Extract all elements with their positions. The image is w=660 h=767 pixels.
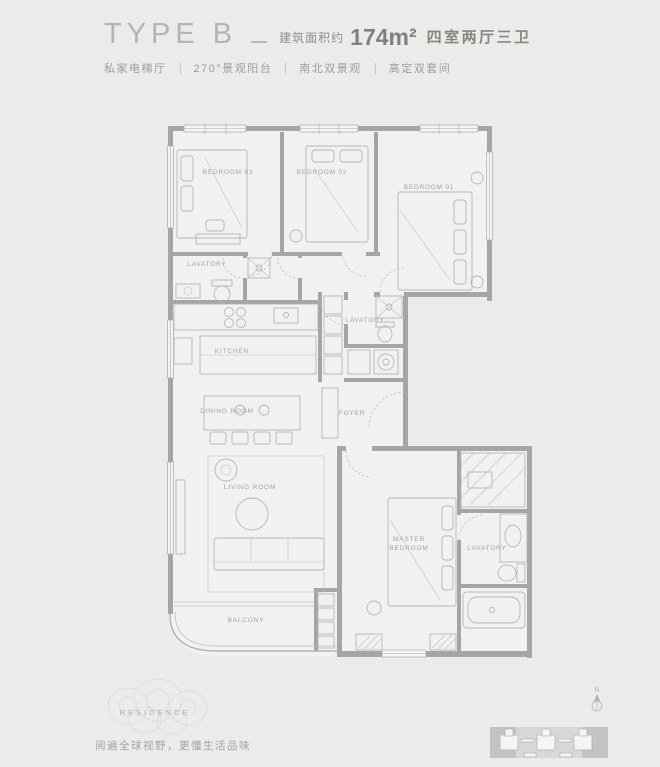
label-balcony: BALCONY — [228, 617, 265, 624]
label-bedroom-03: BEDROOM 03 — [203, 169, 254, 176]
north-arrow-icon: N — [592, 687, 602, 711]
label-master-bedroom-2: BEDROOM — [389, 545, 428, 552]
label-dining-room: DINING ROOM — [200, 408, 254, 415]
label-kitchen: KITCHEN — [215, 348, 249, 355]
unit-floor — [170, 128, 532, 656]
label-foyer: FOYER — [339, 410, 365, 417]
north-label: N — [594, 687, 599, 694]
building-key-plan — [490, 727, 608, 758]
label-lavatory-master: LAVATORY — [467, 545, 506, 552]
residence-logo-text: RESIDENCE — [120, 708, 191, 717]
label-lavatory-north: LAVATORY — [187, 261, 226, 268]
label-lavatory-middle: LAVATORY — [345, 317, 384, 324]
floor-plan: BEDROOM 03 BEDROOM 02 BEDROOM 01 LAVATOR… — [0, 0, 660, 767]
label-living-room: LIVING ROOM — [224, 484, 276, 491]
label-bedroom-02: BEDROOM 02 — [297, 169, 348, 176]
page: TYPE B 建筑面积约 174m² 四室两厅三卫 私家电梯厅 270°景观阳台… — [0, 0, 660, 767]
slogan-text: 阅遍全球视野，更懂生活品味 — [95, 738, 251, 753]
label-master-bedroom-1: MASTER — [393, 536, 425, 543]
label-bedroom-01: BEDROOM 01 — [404, 184, 455, 191]
residence-logo: RESIDENCE — [108, 679, 207, 734]
